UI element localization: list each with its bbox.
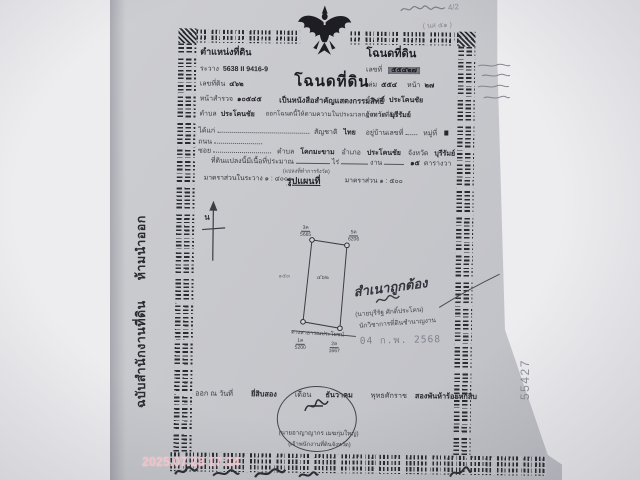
boundary-marker-label: 1ค 5200 [295, 338, 306, 351]
deed-subtitle: เป็นหนังสือสำคัญแสดงกรรมสิทธิ์ [254, 94, 410, 108]
officer-role: (เจ้าพนักงานที่ดินจังหวัด) [259, 438, 379, 449]
area-line: ที่ดินแปลงนี้มีเนื้อที่ประมาณ ไร่ งาน ๑๕… [211, 156, 451, 170]
owner-amphoe-value: ประโคนชัย [367, 150, 401, 157]
bottom-signature-scribble [253, 466, 287, 480]
owner-tambon-label: ตำบล [277, 148, 294, 155]
certify-flourish-line [427, 265, 502, 312]
deed-box-header: โฉนดที่ดิน [366, 44, 435, 63]
document-photo: ฉบับสำนักงานที่ดิน ห้ามนำออก 55427 [0, 0, 640, 480]
bottom-signature-scribble [447, 466, 473, 480]
camera-timestamp: 2025.07.23 17:14 [142, 455, 240, 469]
north-arrow-icon [198, 199, 229, 265]
land-position-header: ตำแหน่งที่ดิน [200, 45, 268, 60]
garuda-emblem-icon [295, 0, 354, 64]
certifier-signature-icon [373, 293, 401, 307]
scale-right: มาตราส่วน ๑ : ๕๐๐ [345, 174, 403, 186]
rawang-label: ระวาง [200, 66, 219, 73]
boundary-marker-label: 3ค 5665 [300, 225, 311, 238]
deed-title: โฉนดที่ดิน [272, 68, 392, 93]
parcel-number: ๔๖๒ [316, 272, 328, 282]
wa-blank [384, 158, 404, 165]
issue-year: สองพันห้าร้อยหกสิบ [415, 391, 477, 401]
tambon-label: ตำบล [199, 111, 216, 118]
land-no-value: ๔๖๒ [229, 81, 243, 88]
daikae-label: ได้แก่ [198, 128, 215, 135]
survey-label: หน้าสำรวจ [200, 96, 233, 103]
pencil-note-fraction: 4/2 [447, 2, 459, 12]
marker-num: 6206 [348, 236, 359, 242]
border-corner-tr [458, 32, 475, 47]
north-label: น [204, 211, 210, 224]
owner-province-value: บุรีรัมย์ [434, 150, 455, 157]
owner-amphoe-label: อำเภอ [342, 149, 361, 156]
tambon-value: ประโคนชัย [221, 111, 255, 118]
nationality-label: สัญชาติ [314, 129, 338, 136]
area-label: ที่ดินแปลงนี้มีเนื้อที่ประมาณ [211, 158, 294, 166]
marker-num: 5665 [300, 232, 311, 238]
marker-num: 5200 [295, 345, 306, 351]
moo-mark [444, 131, 448, 136]
bottom-signature-scribble [211, 468, 241, 480]
wa-label: ตารางวา [424, 160, 452, 167]
deed-authority-line: ออกโฉนดนี้ให้ตามความในประมวลกฎหมายที่ดิน [253, 108, 409, 120]
boundary-marker-label: 2ค 1667 [329, 341, 340, 354]
pencil-scribble-top [399, 3, 447, 16]
page-value: ๒๗ [424, 82, 434, 89]
officer-name: (นายอาญาญากร เมฆกุ่มใหญ่) [254, 427, 384, 439]
owner-name-blank [217, 126, 309, 134]
deed-no-value: ๕๕๔๒๗ [388, 67, 420, 74]
issue-era-label: พุทธศักราช [371, 391, 407, 400]
road-blank [214, 137, 262, 145]
issue-prefix: ออก ณ วันที่ [195, 388, 233, 397]
nationality-value: ไทย [343, 129, 355, 136]
house-no-blank [405, 128, 417, 135]
officer-signature-icon [301, 397, 331, 415]
pencil-scribbles-right [476, 62, 513, 106]
marker-num: 1667 [329, 348, 340, 354]
border-corner-tl [178, 28, 196, 43]
land-no-label: เลขที่ดิน [200, 81, 226, 88]
house-no-label: อยู่บ้านเลขที่ [366, 130, 404, 137]
adjacent-parcel-number: ๑๕๓ [279, 272, 291, 280]
rai-blank [296, 157, 330, 164]
border-top-left [196, 29, 300, 43]
scale-in-rawang: มาตราส่วนในระวาง ๑ : ๔๐๐๐ [204, 172, 293, 184]
issue-day: ยี่สิบสอง [251, 389, 277, 398]
page-label: หน้า [407, 82, 420, 89]
map-heading: รูปแผนที่ [287, 174, 321, 188]
border-left [173, 43, 196, 453]
soi-blank [213, 146, 271, 154]
pencil-note-2: ( นส ๕๑ ) [422, 20, 452, 32]
ngan-blank [341, 157, 368, 164]
owner-tambon-value: โคกมะขาม [300, 149, 334, 156]
bottom-signature-scribble [297, 470, 319, 480]
rai-label: ไร่ [332, 159, 339, 166]
deed-document: 4/2 ( นส ๕๑ ) ตำแหน่งที่ดิน ระวาง5638 II… [0, 0, 640, 480]
soi-label: ซอย [198, 148, 211, 155]
ngan-label: งาน [370, 160, 382, 167]
moo-label: หมู่ที่ [423, 130, 437, 137]
date-stamp: 04 ก.พ. 2568 [360, 332, 442, 349]
boundary-marker-label: 5ค 6206 [348, 229, 359, 242]
owner-province-label: จังหวัด [408, 150, 429, 157]
wa-value: ๑๕ [410, 160, 420, 167]
rawang-value: 5638 II 9416-9 [223, 66, 268, 74]
